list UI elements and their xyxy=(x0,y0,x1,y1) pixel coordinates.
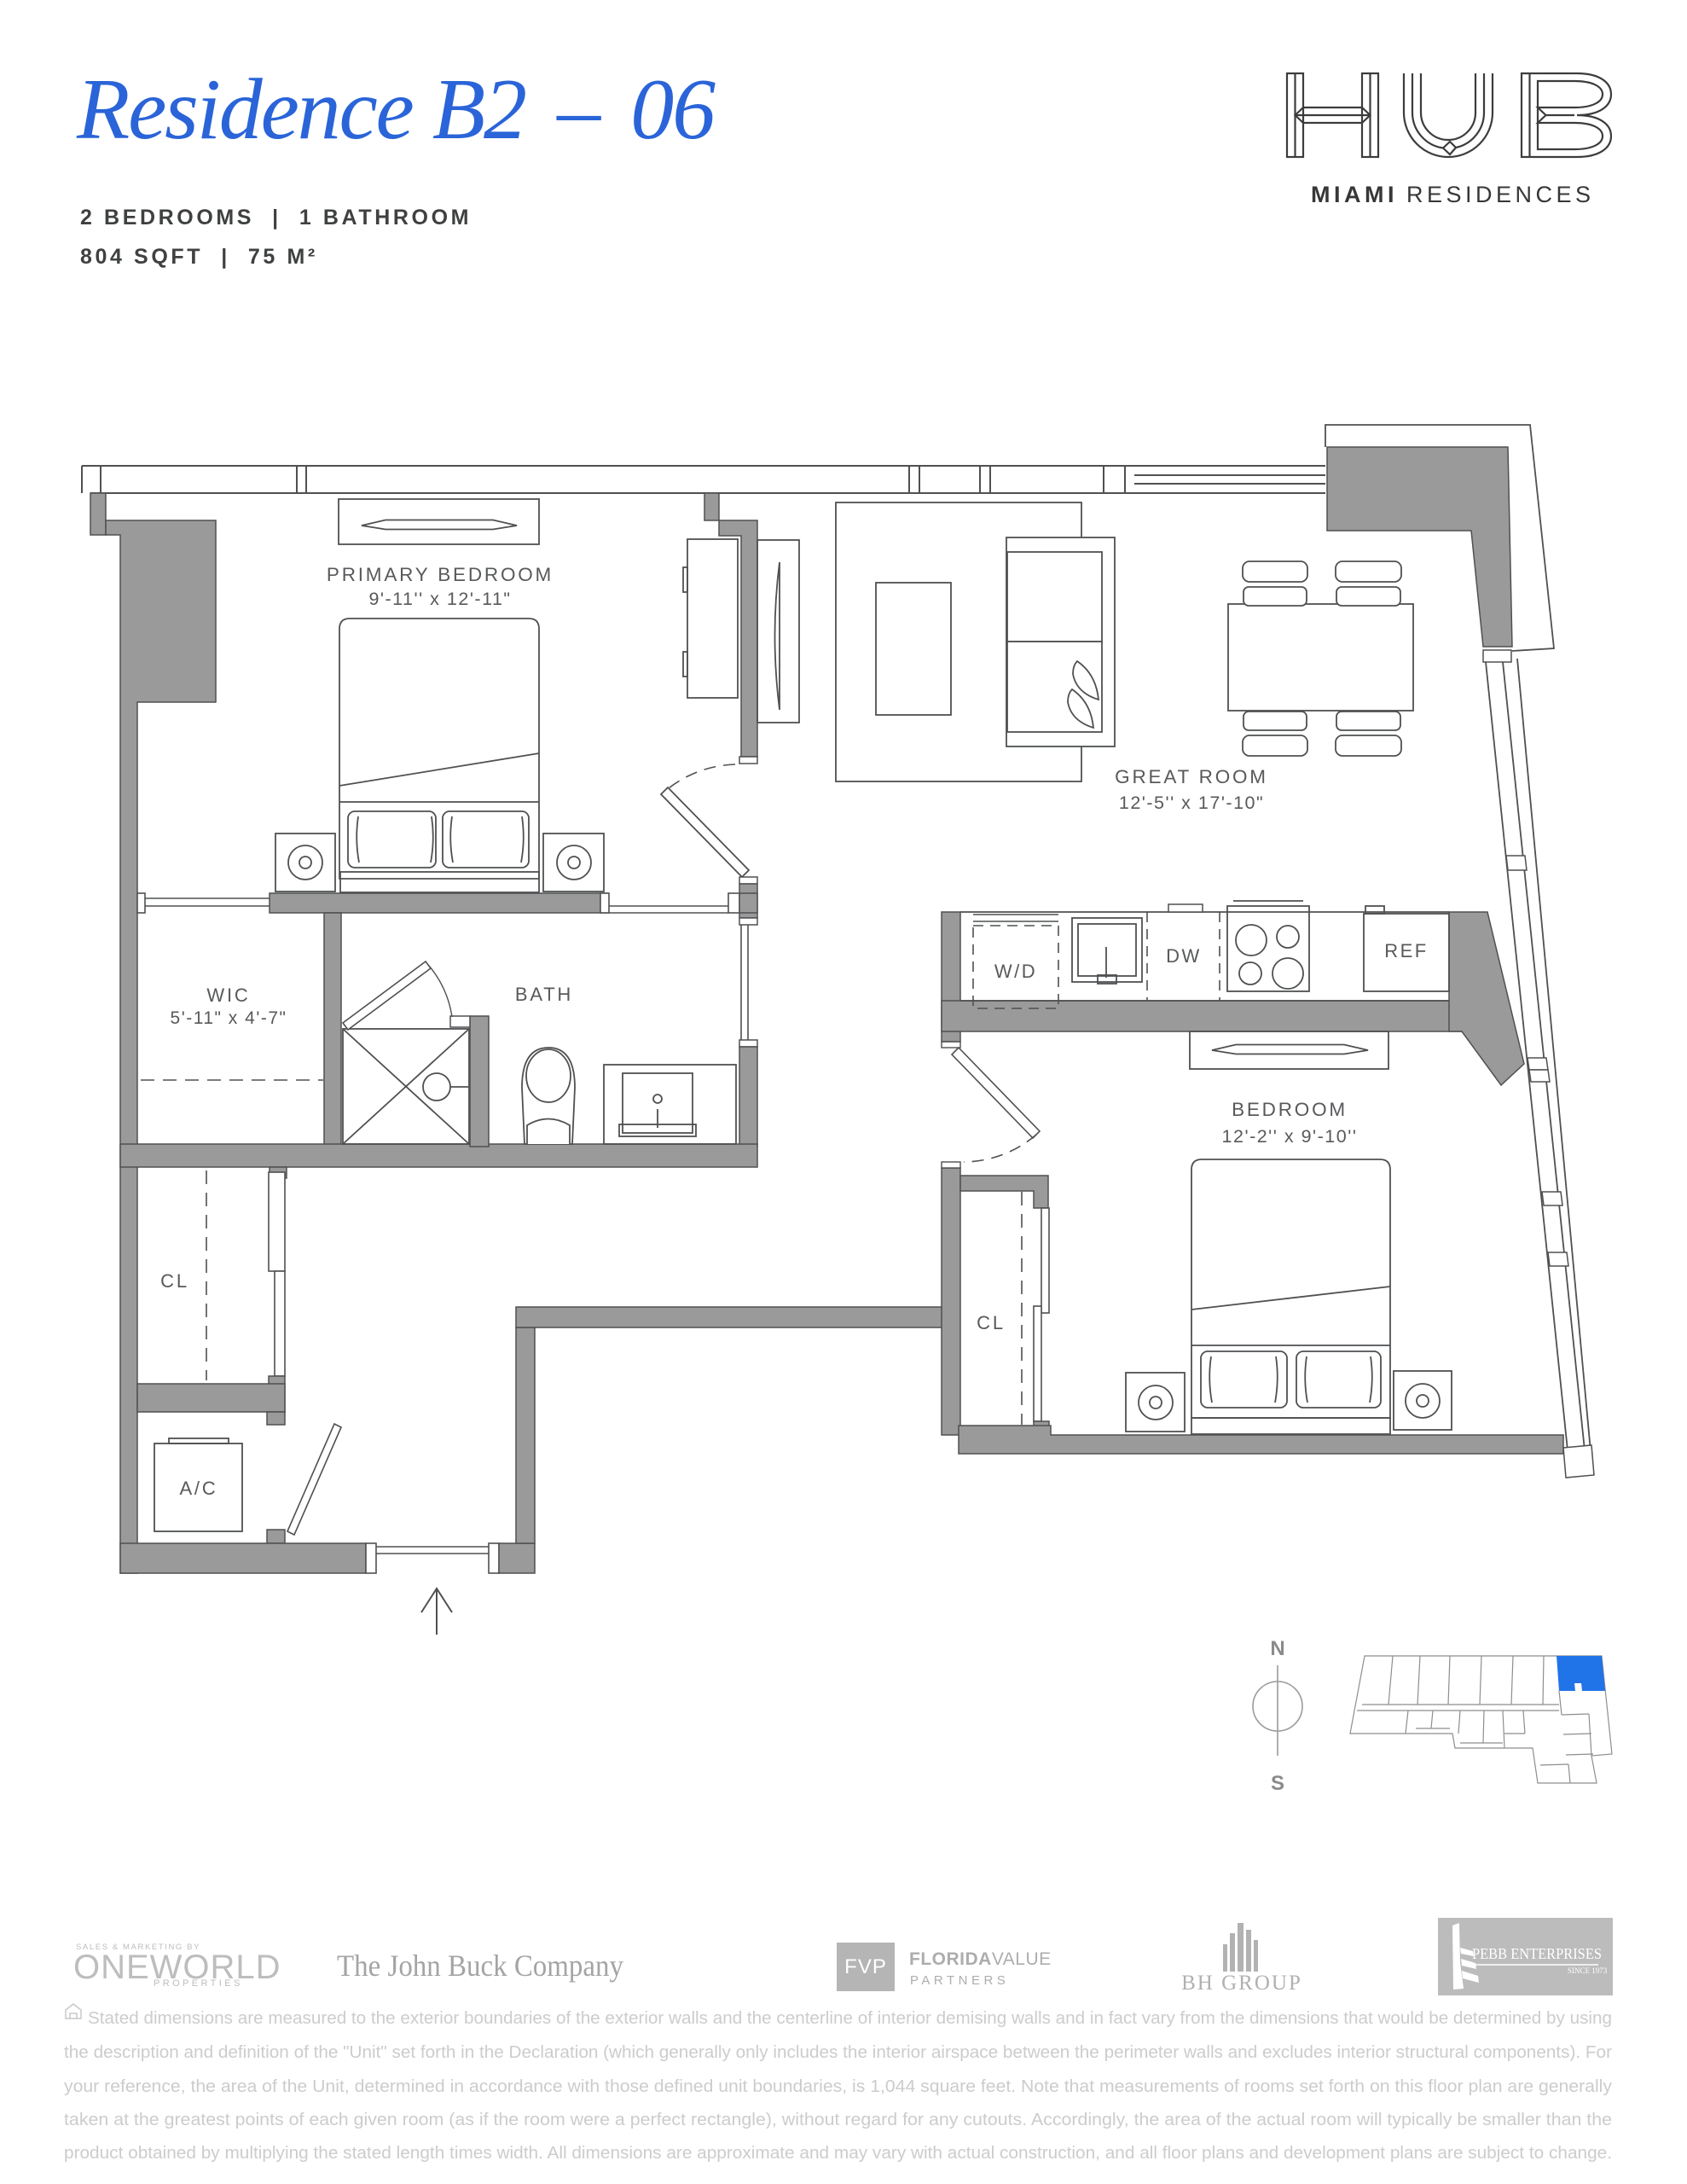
svg-text:SINCE 1973: SINCE 1973 xyxy=(1568,1966,1608,1975)
svg-text:WIC: WIC xyxy=(206,985,250,1006)
svg-text:The John Buck Company: The John Buck Company xyxy=(337,1949,623,1983)
svg-text:PRIMARY BEDROOM: PRIMARY BEDROOM xyxy=(327,564,554,585)
svg-text:taken at the greatest points o: taken at the greatest points of each giv… xyxy=(64,2111,1612,2129)
svg-text:GREAT ROOM: GREAT ROOM xyxy=(1115,766,1268,787)
svg-text:12'-2'' x 9'-10'': 12'-2'' x 9'-10'' xyxy=(1222,1126,1358,1147)
svg-text:Stated dimensions are measured: Stated dimensions are measured to the ex… xyxy=(88,2009,1612,2028)
svg-text:BH GROUP: BH GROUP xyxy=(1181,1972,1302,1995)
svg-text:FLORIDAVALUE: FLORIDAVALUE xyxy=(909,1949,1052,1969)
svg-text:2 BEDROOMS | 1 BATHROOM: 2 BEDROOMS | 1 BATHROOM xyxy=(80,206,472,229)
svg-text:BEDROOM: BEDROOM xyxy=(1232,1099,1348,1120)
svg-text:N: N xyxy=(1270,1637,1284,1660)
svg-text:MIAMIRESIDENCES: MIAMIRESIDENCES xyxy=(1311,182,1595,207)
svg-text:804 SQFT | 75 M²: 804 SQFT | 75 M² xyxy=(80,245,318,269)
svg-text:REF: REF xyxy=(1384,940,1429,961)
svg-text:FVP: FVP xyxy=(844,1955,887,1978)
svg-text:CL: CL xyxy=(977,1312,1006,1333)
svg-text:DW: DW xyxy=(1166,945,1202,967)
svg-text:A/C: A/C xyxy=(179,1478,217,1499)
svg-text:S: S xyxy=(1271,1772,1284,1795)
svg-text:BATH: BATH xyxy=(515,984,573,1005)
svg-text:PARTNERS: PARTNERS xyxy=(910,1973,1009,1988)
svg-text:W/D: W/D xyxy=(994,961,1037,982)
svg-text:9'-11'' x 12'-11": 9'-11'' x 12'-11" xyxy=(368,589,511,609)
svg-text:the description and definition: the description and definition of the "U… xyxy=(64,2043,1612,2062)
svg-text:12'-5'' x 17'-10": 12'-5'' x 17'-10" xyxy=(1119,793,1264,813)
svg-text:5'-11" x 4'-7": 5'-11" x 4'-7" xyxy=(171,1008,287,1028)
svg-text:PROPERTIES: PROPERTIES xyxy=(154,1978,243,1989)
svg-text:PEBB ENTERPRISES: PEBB ENTERPRISES xyxy=(1472,1945,1602,1962)
svg-text:your reference, the area of th: your reference, the area of the Unit, de… xyxy=(64,2077,1612,2096)
svg-text:product obtained by multiplyin: product obtained by multiplying the stat… xyxy=(64,2144,1612,2163)
svg-text:CL: CL xyxy=(160,1270,189,1292)
